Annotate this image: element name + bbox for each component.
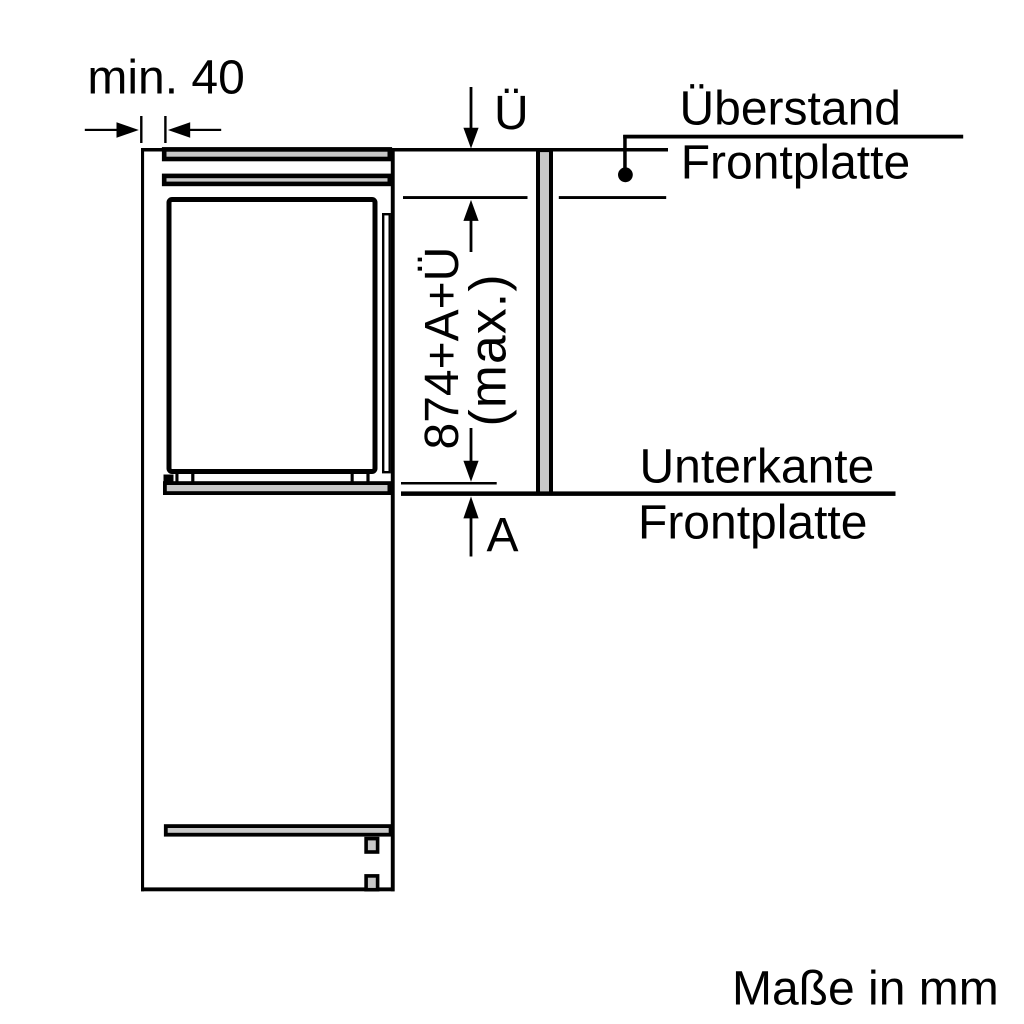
svg-text:Überstand: Überstand [680,83,901,136]
svg-text:Frontplatte: Frontplatte [681,137,910,190]
svg-text:(max.): (max.) [459,275,517,427]
svg-text:A: A [487,509,519,562]
svg-text:Maße in mm: Maße in mm [732,963,999,1016]
svg-text:Unterkante: Unterkante [640,441,875,494]
svg-text:Ü: Ü [494,87,529,140]
svg-text:Frontplatte: Frontplatte [638,497,867,550]
svg-text:min. 40: min. 40 [87,52,244,105]
